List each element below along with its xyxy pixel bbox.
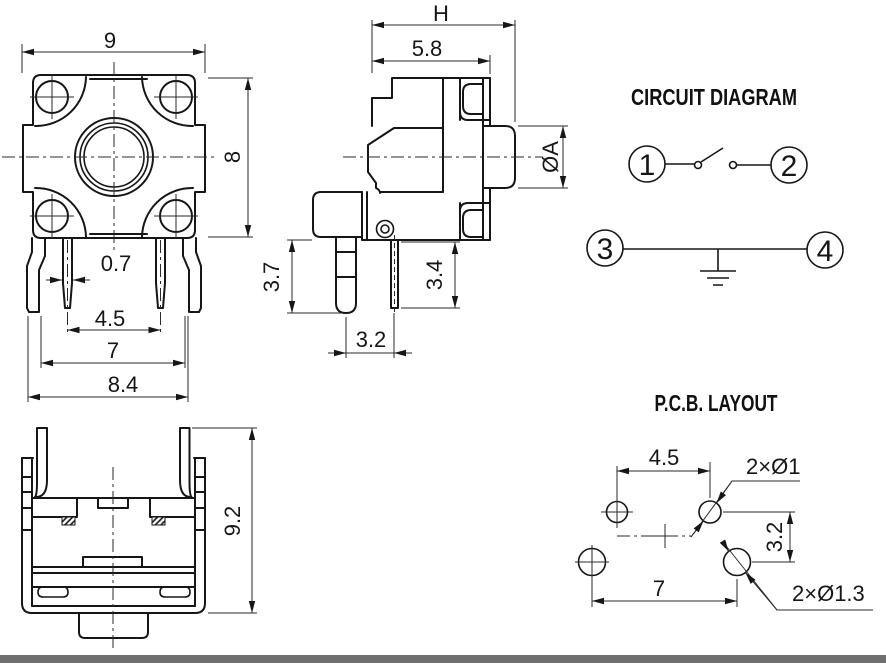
dim-pin-spacing: 3.2: [356, 327, 387, 352]
dim-body-width: 5.8: [412, 36, 443, 61]
footer-divider-bar: [0, 655, 886, 663]
left-contact-hatch: [62, 517, 75, 525]
dim-outer-pin-spacing: 7: [107, 338, 119, 363]
label-lower-holes: 2×Ø1.3: [792, 581, 865, 606]
terminal-3-label: 3: [597, 233, 614, 266]
technical-drawing-canvas: 9 8 0.7 4.5 7 8.4: [0, 0, 886, 669]
dim-upper-hole-spacing: 4.5: [649, 445, 680, 470]
dim-front-height: 9.2: [220, 506, 245, 537]
dim-total-width: H: [433, 1, 449, 26]
dim-pin-span: 8.4: [108, 372, 139, 397]
dim-inner-pin-spacing: 4.5: [95, 306, 126, 331]
circuit-diagram-title: CIRCUIT DIAGRAM: [631, 84, 797, 110]
dim-pin-width: 0.7: [101, 251, 132, 276]
dim-top-height: 8: [220, 151, 245, 163]
dim-left-pin-length: 3.7: [259, 262, 284, 293]
terminal-1-label: 1: [639, 149, 656, 182]
terminal-2-label: 2: [781, 150, 798, 183]
dim-actuator-diameter: ØA: [538, 141, 563, 173]
pcb-layout-title: P.C.B. LAYOUT: [655, 390, 778, 416]
terminal-4-label: 4: [817, 235, 834, 268]
label-upper-holes: 2×Ø1: [746, 454, 800, 479]
dim-row-spacing: 3.2: [762, 522, 787, 553]
dim-right-pin-length: 3.4: [422, 260, 447, 291]
dim-lower-hole-spacing: 7: [653, 576, 665, 601]
dim-top-width: 9: [104, 28, 116, 53]
right-contact-hatch: [152, 517, 165, 525]
